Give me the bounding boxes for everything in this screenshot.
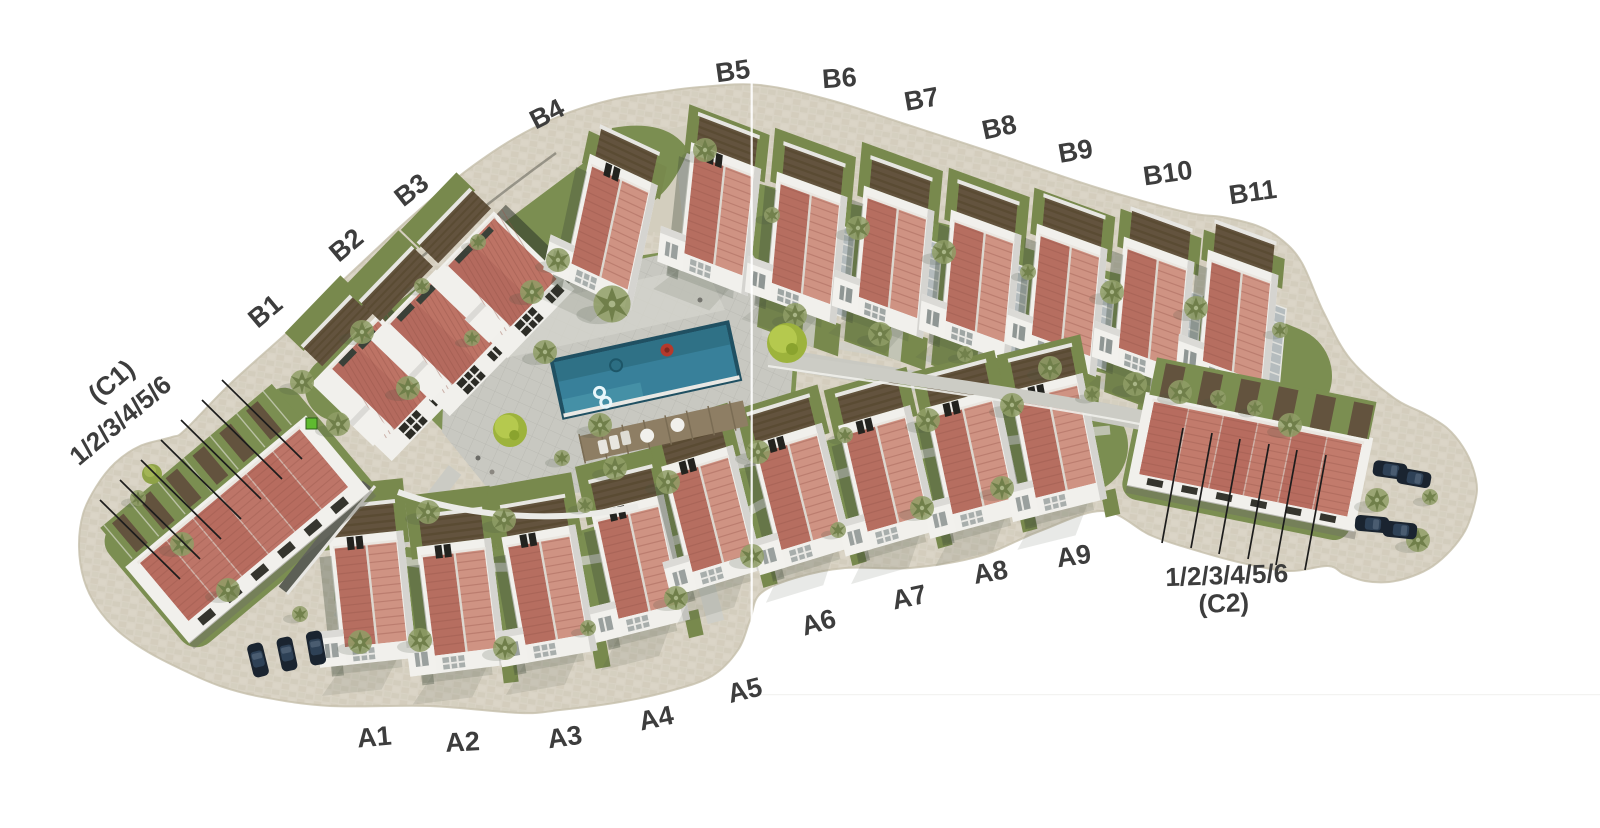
svg-text:(C2): (C2) bbox=[1198, 587, 1250, 619]
svg-text:B9: B9 bbox=[1056, 133, 1095, 169]
svg-text:B7: B7 bbox=[902, 81, 941, 117]
svg-text:A3: A3 bbox=[546, 720, 584, 755]
svg-text:A1: A1 bbox=[356, 721, 393, 754]
svg-text:B6: B6 bbox=[821, 62, 858, 94]
svg-text:B5: B5 bbox=[714, 54, 752, 89]
svg-text:A2: A2 bbox=[445, 726, 481, 758]
svg-text:A8: A8 bbox=[971, 554, 1010, 590]
svg-text:A9: A9 bbox=[1055, 539, 1093, 574]
